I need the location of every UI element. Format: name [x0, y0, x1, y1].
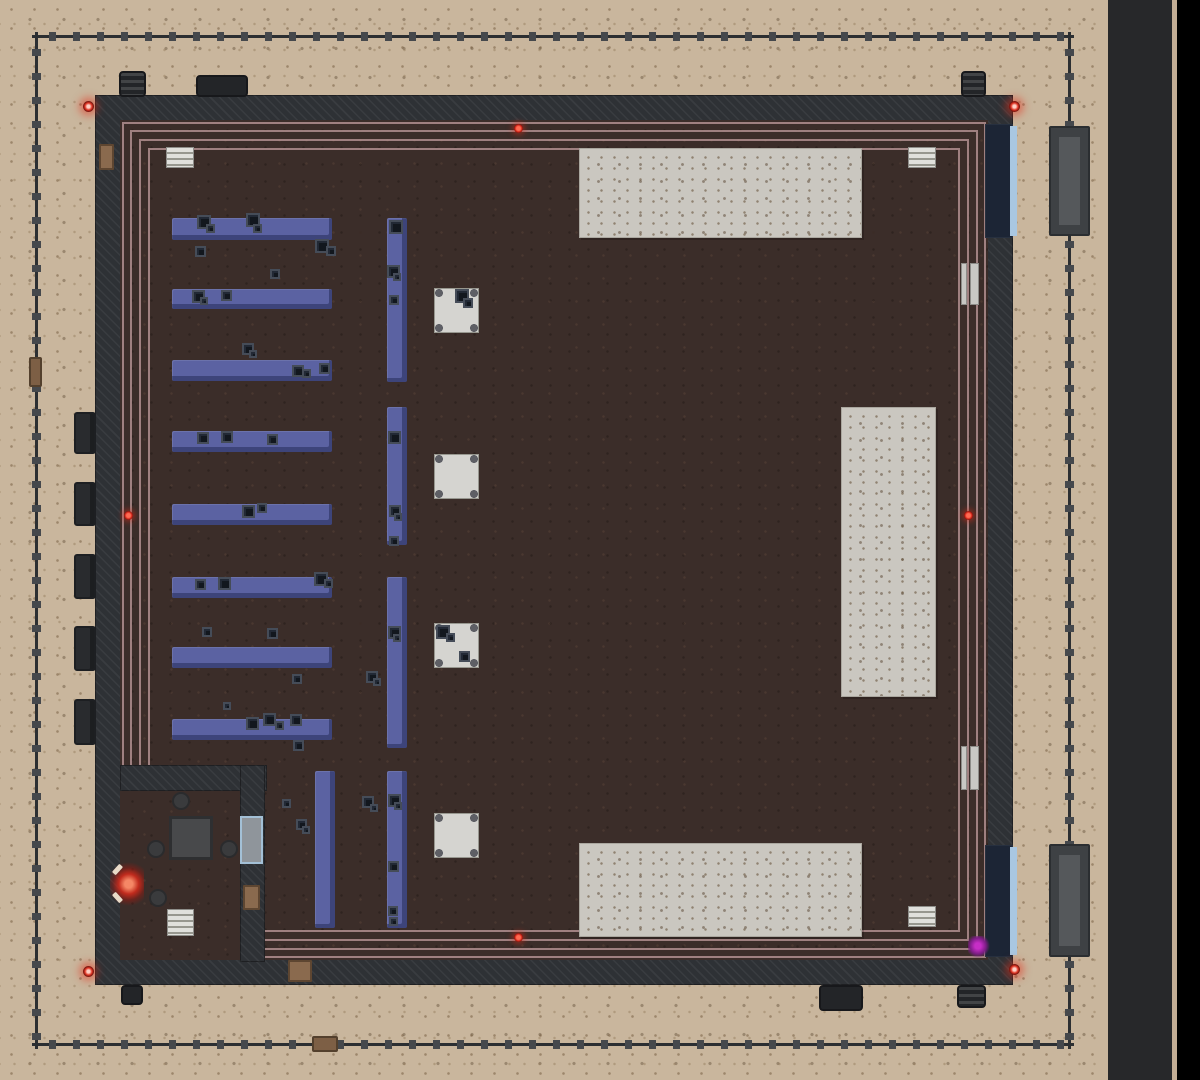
- concrete-pad: [579, 843, 862, 937]
- map-edge-void: [1177, 0, 1200, 1080]
- exterior-wall-unit: [74, 626, 96, 671]
- crate: [197, 432, 209, 444]
- crate: [393, 273, 401, 281]
- wooden-door[interactable]: [288, 960, 312, 982]
- corner-alarm-light: [83, 966, 94, 977]
- corner-alarm-light: [1009, 101, 1020, 112]
- crate: [246, 717, 259, 730]
- shelf-column: [387, 407, 407, 545]
- perimeter-fence: [32, 1040, 1074, 1049]
- exterior-wall-unit: [74, 699, 96, 745]
- crate: [370, 804, 378, 812]
- shelf-row: [172, 431, 332, 452]
- crate: [394, 513, 402, 521]
- alarm-sensor: [964, 511, 973, 520]
- crate: [302, 369, 311, 378]
- crate: [275, 721, 284, 730]
- crate: [200, 297, 208, 305]
- exterior-wall-unit: [74, 482, 96, 526]
- crate: [319, 363, 330, 374]
- crate: [253, 224, 262, 233]
- break-room-table: [169, 816, 213, 860]
- wall-trim-line: [148, 148, 960, 932]
- crate: [389, 917, 398, 926]
- floor-vent: [166, 147, 194, 168]
- vehicle-gate[interactable]: [1049, 844, 1090, 957]
- garage-door-edge: [1010, 126, 1017, 236]
- crate: [463, 298, 473, 308]
- crate: [195, 246, 206, 257]
- corner-alarm-light: [1009, 964, 1020, 975]
- crate: [324, 579, 333, 588]
- crate: [292, 674, 302, 684]
- shelf-column: [315, 771, 335, 928]
- wall-radiator: [970, 263, 979, 305]
- wooden-door[interactable]: [99, 144, 114, 170]
- crate: [389, 220, 403, 234]
- corner-alarm-light: [83, 101, 94, 112]
- fence-gate[interactable]: [29, 357, 42, 387]
- floor-vent: [167, 909, 194, 936]
- crate: [195, 579, 206, 590]
- ac-unit: [961, 71, 986, 97]
- shelf-row: [172, 647, 332, 668]
- crate: [282, 799, 291, 808]
- crate: [270, 269, 280, 279]
- stool: [220, 840, 238, 858]
- floor-vent: [908, 147, 936, 168]
- alarm-sensor: [514, 933, 523, 942]
- concrete-pad: [841, 407, 936, 697]
- fire-light: [110, 862, 144, 906]
- alarm-sensor: [514, 124, 523, 133]
- perimeter-fence: [32, 32, 41, 1049]
- concrete-pad: [579, 148, 862, 238]
- crate: [242, 505, 255, 518]
- crate: [218, 577, 231, 590]
- stool: [147, 840, 165, 858]
- crate: [388, 906, 398, 916]
- floor-vent: [908, 906, 936, 927]
- utility-box: [121, 985, 143, 1005]
- room-window: [240, 816, 263, 864]
- fence-gate[interactable]: [312, 1036, 338, 1052]
- road-surface: [1108, 0, 1172, 1080]
- crate: [202, 627, 212, 637]
- stool: [149, 889, 167, 907]
- crate: [389, 295, 399, 305]
- crate: [223, 702, 231, 710]
- utility-box: [196, 75, 248, 97]
- crate: [302, 826, 310, 834]
- crate: [326, 246, 336, 256]
- crate: [249, 350, 257, 358]
- crate: [373, 678, 381, 686]
- wall-radiator: [970, 746, 979, 790]
- vehicle-gate[interactable]: [1049, 126, 1090, 236]
- work-table: [434, 813, 479, 858]
- crate: [389, 536, 399, 546]
- perimeter-fence: [32, 32, 1074, 41]
- wooden-door[interactable]: [243, 885, 260, 910]
- crate: [267, 434, 278, 445]
- crate: [221, 290, 232, 301]
- crate: [393, 634, 401, 642]
- crate: [388, 431, 401, 444]
- ac-unit: [119, 71, 146, 97]
- purple-glow-item: [968, 936, 990, 958]
- crate: [257, 503, 267, 513]
- crate: [206, 224, 215, 233]
- ac-unit: [957, 985, 986, 1008]
- exterior-wall-unit: [74, 554, 96, 599]
- crate: [446, 633, 455, 642]
- shelf-column: [387, 577, 407, 748]
- crate: [221, 431, 233, 443]
- crate: [394, 802, 402, 810]
- utility-box: [819, 985, 863, 1011]
- crate: [267, 628, 278, 639]
- alarm-sensor: [124, 511, 133, 520]
- garage-door[interactable]: [985, 124, 1013, 238]
- crate: [290, 714, 302, 726]
- crate: [388, 861, 399, 872]
- crate: [459, 651, 470, 662]
- work-table: [434, 454, 479, 499]
- game-map-viewport[interactable]: [0, 0, 1200, 1080]
- wall-radiator: [961, 746, 967, 790]
- crate: [293, 740, 304, 751]
- exterior-wall-unit: [74, 412, 96, 454]
- stool: [172, 792, 190, 810]
- wall-radiator: [961, 263, 967, 305]
- garage-door-edge: [1010, 847, 1017, 955]
